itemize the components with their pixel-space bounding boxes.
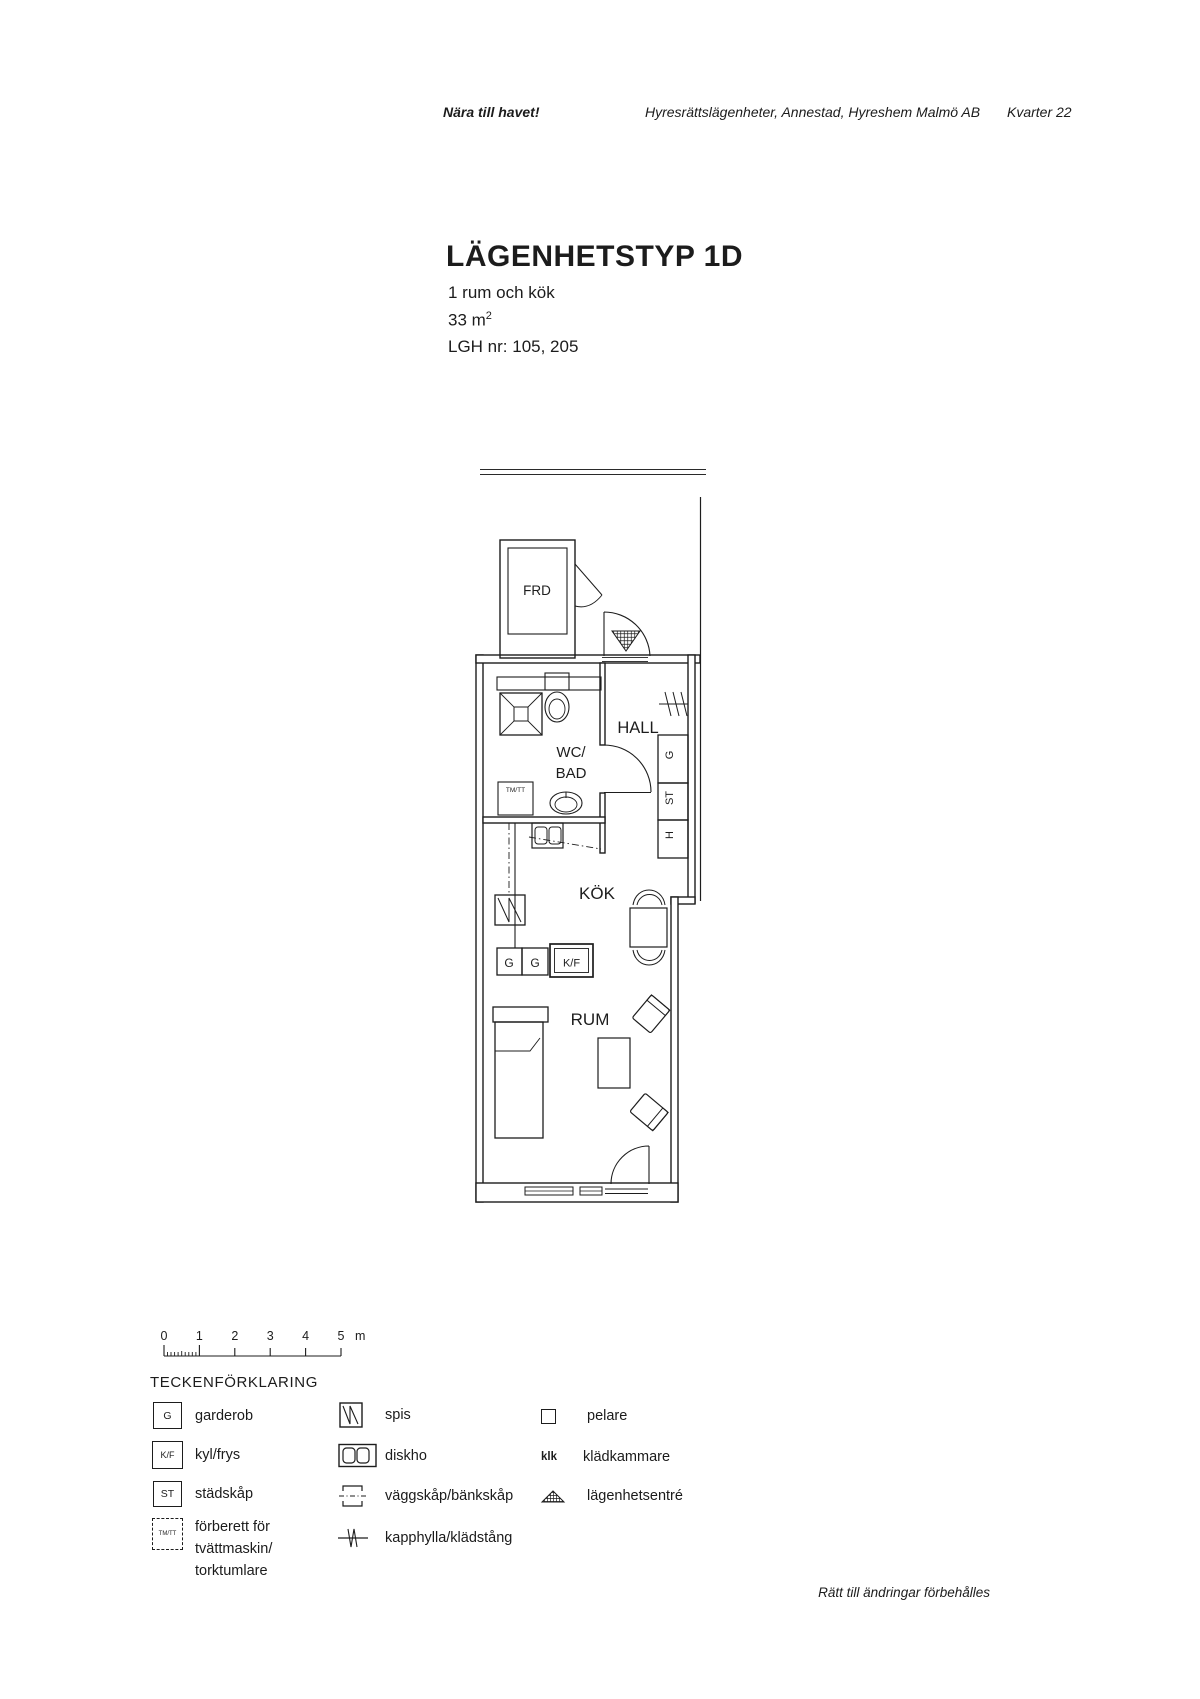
coat-rail-icon xyxy=(659,692,688,716)
scale-bar: 0 1 2 3 4 5 m xyxy=(148,1326,378,1368)
dining-chair xyxy=(633,950,665,965)
area-line: 33 m2 xyxy=(448,310,492,331)
diskho-symbol xyxy=(338,1443,378,1468)
legend-label: kyl/frys xyxy=(195,1447,240,1463)
legend-item-kylfrys: K/F kyl/frys xyxy=(152,1441,240,1469)
bed xyxy=(495,1022,543,1138)
legend-label: pelare xyxy=(587,1408,627,1424)
hall-label: HALL xyxy=(617,719,658,737)
legend-item-kapphylla: kapphylla/klädstång xyxy=(338,1526,512,1550)
kylfrys-symbol: K/F xyxy=(152,1441,183,1469)
kapphylla-symbol xyxy=(338,1526,368,1550)
scale-tick-4: 4 xyxy=(302,1329,309,1343)
footer-note: Rätt till ändringar förbehålles xyxy=(818,1585,990,1600)
legend-title: TECKENFÖRKLARING xyxy=(150,1374,318,1391)
legend-label: kapphylla/klädstång xyxy=(385,1530,512,1546)
legend-item-garderob: G garderob xyxy=(153,1402,253,1429)
legend-label: garderob xyxy=(195,1408,253,1424)
vaggskap-symbol xyxy=(339,1483,366,1509)
legend-item-stadskap: ST städskåp xyxy=(153,1481,253,1507)
pelare-symbol xyxy=(541,1409,556,1424)
klk-symbol: klk xyxy=(541,1451,557,1463)
dining-chair xyxy=(633,890,665,905)
wardrobe-label: G xyxy=(504,956,513,970)
legend-item-tvattmaskin: TM/TT förberett för tvättmaskin/ torktum… xyxy=(152,1518,272,1582)
spis-symbol xyxy=(339,1402,363,1428)
tvattmaskin-symbol: TM/TT xyxy=(152,1518,183,1550)
legend-label: väggskåp/bänkskåp xyxy=(385,1488,513,1504)
apartment-type-title: LÄGENHETSTYP 1D xyxy=(446,240,743,274)
page-subtitle: Hyresrättslägenheter, Annestad, Hyreshem… xyxy=(645,104,980,120)
bad-label: BAD xyxy=(556,765,587,782)
scale-tick-3: 3 xyxy=(267,1329,274,1343)
entrance-marker-icon xyxy=(612,631,640,651)
armchair xyxy=(632,995,670,1033)
closet-h-label: H xyxy=(664,831,676,839)
side-table xyxy=(598,1038,630,1088)
windows xyxy=(525,1187,602,1195)
wardrobe-label: G xyxy=(530,956,539,970)
stadskap-symbol: ST xyxy=(153,1481,182,1507)
area-value: 33 m xyxy=(448,311,486,330)
balcony-door-swing xyxy=(611,1146,649,1184)
scale-tick-5: 5 xyxy=(338,1329,345,1343)
lagenhetsentre-symbol xyxy=(540,1488,566,1504)
floorplan-page: { "header": { "tagline": "Nära till have… xyxy=(0,0,1200,1699)
page-tagline: Nära till havet! xyxy=(443,104,539,120)
legend-item-kladkammare: klk klädkammare xyxy=(541,1449,670,1465)
legend-label-line: tvättmaskin/ xyxy=(195,1538,272,1560)
lgh-number-line: LGH nr: 105, 205 xyxy=(448,337,578,357)
wc-label: WC/ xyxy=(556,744,586,761)
tmtt-label: TM/TT xyxy=(506,787,525,794)
closet-st-label: ST xyxy=(664,791,676,805)
floorplan-drawing: FRD HALL WC/ BAD TM/TT KÖK G G K/F RUM G… xyxy=(430,478,720,1238)
legend-label: lägenhetsentré xyxy=(587,1488,683,1504)
legend-label: klädkammare xyxy=(583,1449,670,1465)
frd-storage xyxy=(500,540,602,658)
scale-unit: m xyxy=(355,1329,365,1343)
legend-label-line: förberett för xyxy=(195,1516,272,1538)
fridge-label: K/F xyxy=(563,958,580,970)
scale-tick-1: 1 xyxy=(196,1329,203,1343)
garderob-symbol: G xyxy=(153,1402,182,1429)
kok-label: KÖK xyxy=(579,884,616,903)
armchair xyxy=(630,1093,668,1131)
legend-item-vaggskap: väggskåp/bänkskåp xyxy=(339,1483,513,1509)
legend-label-line: torktumlare xyxy=(195,1560,272,1582)
legend-label: städskåp xyxy=(195,1486,253,1502)
legend-item-lagenhetsentre: lägenhetsentré xyxy=(540,1488,683,1504)
closet-g-label: G xyxy=(664,751,676,760)
scale-tick-2: 2 xyxy=(231,1329,238,1343)
legend-item-pelare: pelare xyxy=(541,1408,627,1424)
area-sup: 2 xyxy=(486,310,492,322)
legend-label: spis xyxy=(385,1407,411,1423)
block-label: Kvarter 22 xyxy=(1007,104,1072,120)
rooms-line: 1 rum och kök xyxy=(448,283,555,303)
legend-label: diskho xyxy=(385,1448,427,1464)
legend-item-spis: spis xyxy=(339,1402,411,1428)
legend-item-diskho: diskho xyxy=(338,1443,427,1468)
section-rule xyxy=(480,469,706,475)
legend-label: förberett för tvättmaskin/ torktumlare xyxy=(195,1516,272,1582)
scale-tick-0: 0 xyxy=(161,1329,168,1343)
rum-label: RUM xyxy=(571,1010,610,1029)
frd-label: FRD xyxy=(523,583,551,598)
dining-table xyxy=(630,908,667,947)
